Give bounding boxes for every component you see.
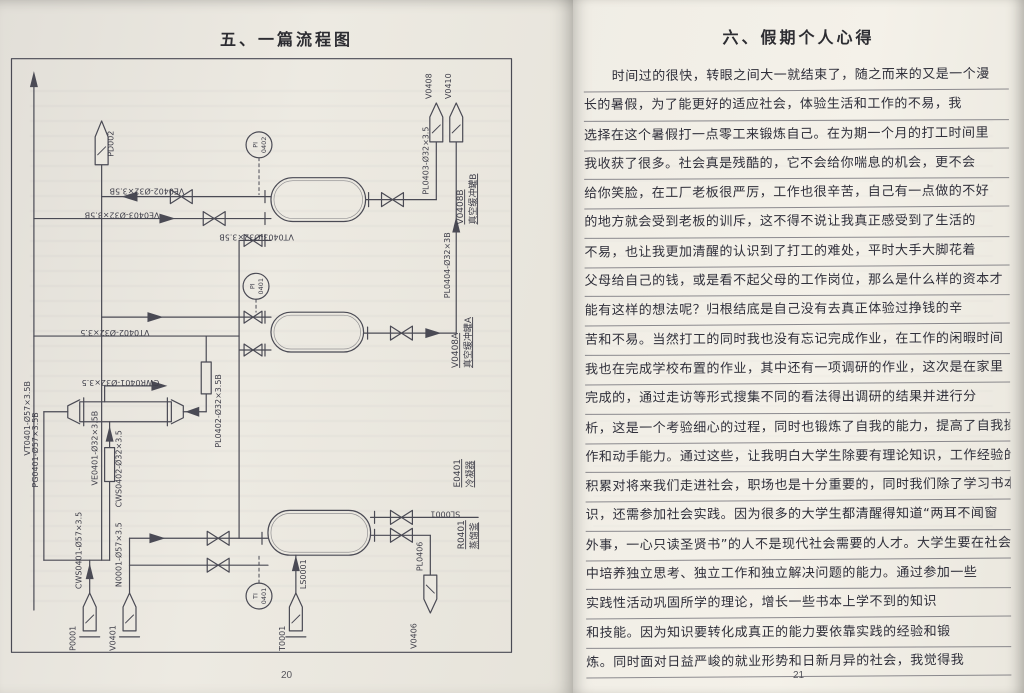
essay-line: 长的暑假，为了能更好的适应社会，体验生活和工作的不易，我 (584, 90, 1009, 121)
essay-line: 我收获了很多。社会真是残酷的，它不会给你喘息的机会，更不会 (584, 149, 1009, 180)
vessel-receiver (268, 510, 371, 555)
right-page: 六、假期个人心得 时间过的很快，转眼之间大一就结束了，随之而来的又是一个漫 长的… (573, 0, 1024, 693)
svg-text:PI: PI (252, 142, 260, 148)
label-line-pl0406: PL0406 (415, 542, 424, 571)
essay-line: 选择在这个暑假打一点零工来锻炼自己。在为期一个月的打工时间里 (584, 119, 1009, 151)
essay-line: 不易，也让我更加清醒的认识到了打工的难处，平时大手大脚花着 (584, 236, 1009, 268)
label-line-cws0401: CWS0401-Ø57×3.5 (74, 512, 84, 589)
svg-text:TI: TI (252, 593, 260, 600)
equipment-label-r0401: R0401 蒸馏釜 (457, 520, 480, 549)
essay-body: 时间过的很快，转眼之间大一就结束了，随之而来的又是一个漫 长的暑假，为了能更好的… (584, 61, 1012, 678)
left-page-number: 20 (0, 670, 573, 681)
label-line-vt0402: VT0402-Ø32×3.5 (80, 328, 149, 338)
essay-line: 时间过的很快，转眼之间大一就结束了，随之而来的又是一个漫 (584, 61, 1009, 93)
essay-line: 析，这是一个考验细心的过程，同时也锻炼了自我的能力，提高了自我操 (585, 412, 1010, 444)
instrument-text-ti0401: TI 0401 (252, 588, 268, 604)
label-flag-v0408: V0408 (424, 73, 433, 99)
equipment-label-v0408a: V0408A 真空缓冲罐A (451, 316, 474, 368)
label-flag-v0401: V0401 (109, 625, 118, 651)
sight-glass (201, 362, 211, 394)
label-line-pl0403: PL0403-Ø32×3.5 (420, 127, 430, 195)
label-line-pl0404: PL0404-Ø32×3B (442, 232, 452, 298)
flow-arrows (30, 71, 460, 579)
essay-line: 中培养独立思考、独立工作和独立解决问题的能力。通过参加一些 (586, 559, 1011, 590)
essay-line: 和技能。因为知识要转化成真正的能力要依靠实践的经验和锻 (586, 618, 1011, 649)
right-page-number: 21 (573, 670, 1024, 681)
essay-line: 作和动手能力。通过这些，让我明白大学生除要有理论知识，工作经验的 (585, 442, 1010, 473)
label-line-sl0001: SL0001 (430, 509, 460, 518)
label-line-ve0402: VE0402-Ø32×3.5B (110, 187, 185, 197)
label-line-cwr0401: CWR0401-Ø32×3.5 (82, 378, 160, 388)
svg-text:0401: 0401 (260, 588, 268, 604)
svg-text:0402: 0402 (260, 137, 268, 153)
svg-text:蒸馏釜: 蒸馏釜 (468, 522, 480, 549)
process-flow-diagram: VT0401-Ø57×3.5B VE0401-Ø32×3.5B PD002 VE… (10, 55, 513, 657)
svg-text:冷凝器: 冷凝器 (464, 461, 476, 488)
essay-line: 父母给自己的钱，或是看不起父母的工作岗位，那么是什么样的资本才 (585, 266, 1010, 297)
essay-line: 外事，一心只读圣贤书”的人不是现代社会需要的人才。大学生要在社会实践 (586, 529, 1011, 561)
svg-text:真空缓冲罐A: 真空缓冲罐A (462, 316, 474, 368)
strainer (105, 448, 115, 482)
essay-line: 我也在完成学校布置的作业，其中还有一项调研的作业，这次是在家里 (585, 353, 1010, 385)
instrument-text-pi0402: PI 0402 (252, 137, 268, 153)
label-line-pl0402: PL0402-Ø32×3.5B (213, 374, 223, 448)
pipe-cwr0401 (105, 386, 160, 402)
svg-text:0401: 0401 (257, 278, 265, 294)
essay-line: 识，还需参加社会实践。因为很多的大学生都清醒得知道“两耳不闻窗 (586, 501, 1011, 532)
label-flag-pd002: PD002 (107, 131, 116, 157)
essay-line: 完成的，通过走访等形式搜集不同的看法得出调研的结果并进行分 (585, 383, 1010, 414)
instrument-text-pi0401: PI 0401 (249, 278, 265, 294)
label-line-ls0001: LS0001 (299, 559, 308, 589)
svg-text:E0401: E0401 (453, 459, 463, 487)
svg-text:V0408A: V0408A (451, 332, 461, 368)
svg-text:R0401: R0401 (457, 520, 467, 549)
vessel-buffer-tank-b (271, 178, 366, 222)
equipment-label-e0401: E0401 冷凝器 (453, 459, 476, 487)
label-flag-t0001: T0001 (278, 626, 287, 652)
label-line-n0001: N0001-Ø57×3.5 (114, 522, 124, 587)
scanned-notebook-photo: 五、一篇流程图 (0, 0, 1024, 693)
label-flag-p0001: P0001 (69, 626, 78, 651)
essay-line: 能有这样的想法呢？归根结底是自己没有去真正体验过挣钱的辛 (585, 295, 1010, 327)
label-flag-v0410: V0410 (444, 73, 453, 99)
essay-line: 积累对将来我们走进社会，职场也是十分重要的，同时我们除了学习书本知 (585, 471, 1010, 503)
essay-line: 苦和不易。当然打工的同时我也没有忘记完成作业，在工作的闲暇时间 (585, 325, 1010, 356)
equipment-label-v0408b: V0408B 真空缓冲罐B (456, 174, 479, 225)
label-flag-v0406: V0406 (409, 623, 418, 649)
essay-line: 给你笑脸，在工厂老板很严厉，工作也很辛苦，自己有一点做的不好 (584, 178, 1009, 210)
left-page-title: 五、一篇流程图 (0, 26, 573, 50)
essay-line: 的地方就会受到老板的训斥，这不得不说让我真正感受到了生活的 (584, 208, 1009, 239)
svg-text:V0408B: V0408B (456, 189, 466, 224)
left-page: 五、一篇流程图 (0, 0, 573, 693)
svg-text:真空缓冲罐B: 真空缓冲罐B (467, 174, 479, 225)
right-page-title: 六、假期个人心得 (573, 24, 1024, 48)
label-line-pg0401: PG0401-Ø57×3.5B (30, 412, 40, 487)
vessel-buffer-tank-a (271, 312, 364, 352)
label-line-ve0403: VE0403-Ø32×3.5B (85, 211, 160, 221)
heat-exchanger (68, 398, 184, 426)
label-line-ve0401: VE0401-Ø32×3.5B (90, 411, 100, 486)
essay-line: 实践性活动巩固所学的理论，增长一些书本上学不到的知识 (586, 588, 1011, 620)
connector-flag-icons (83, 103, 462, 631)
diagram-frame: VT0401-Ø57×3.5B VE0401-Ø32×3.5B PD002 VE… (10, 55, 513, 657)
svg-text:PI: PI (249, 283, 257, 289)
label-line-vt0403: VT0403-Ø32×3.5B (219, 232, 294, 242)
label-line-cws0402: CWS0402-Ø32×3.5 (114, 430, 124, 507)
